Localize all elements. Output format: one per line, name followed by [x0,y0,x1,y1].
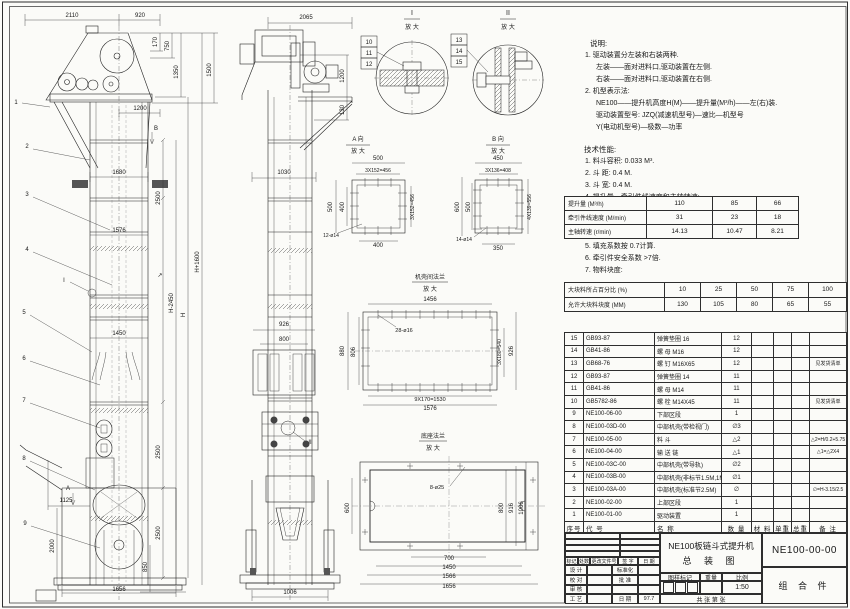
base-flange-view [352,441,546,584]
dim-label: H-2450 [169,293,175,313]
cell: ∅2 [722,458,752,471]
cell [810,345,847,358]
cell [774,333,792,346]
cell: △1=△2X4 [810,446,847,459]
dim-label: 1450 [112,331,126,337]
cell [792,484,810,497]
cell [810,421,847,434]
dim-label: 926 [279,322,290,328]
dim-label: 800 [499,502,505,513]
dim-label: 1350 [174,65,180,79]
dim-label: A 向 [352,135,363,143]
callout-2: 2 [25,144,29,150]
cell [792,458,810,471]
dim-label: 750 [165,40,171,51]
callout-8: 8 [22,456,26,462]
mark-box-1 [663,582,674,593]
dim-label: 130 [340,104,346,115]
dim-label: 放 大 [405,23,419,31]
sign-space [587,575,612,585]
section-mark-ii: II [308,440,312,446]
dim-label: 1500 [207,63,213,77]
cell: 105 [701,297,737,312]
cell [792,358,810,371]
cell: 3 [565,484,584,497]
callout-11: 11 [366,51,373,57]
rev-header: 标记 [565,557,578,565]
cell: NE100-01-00 [584,509,655,522]
cell [774,370,792,383]
cell: 允许大块料块度 (MM) [565,297,665,312]
note-line: 7. 物料块度: [576,265,844,277]
cell [792,496,810,509]
parts-row: 8NE100-03D-00中部机壳(带检视门)∅3 [565,421,847,434]
dim-label: 放 大 [426,444,440,452]
rev-header: 更改文件号 [590,557,618,565]
dim-label: 800 [279,337,290,343]
cell: 牵引件线速度 (M/min) [565,211,647,225]
drawing-title: NE100板链斗式提升机 总 装 图 [660,533,762,573]
sheet-count-row: 共 张 第 张 [660,594,762,604]
cell: 料 斗 [655,433,722,446]
performance-row: 提升量 (M³/h)1108566 [565,197,799,211]
cell: 10.47 [713,225,757,239]
parts-list-table: 15GB93-87弹簧垫圈 161214GB41-86螺 母 M161213GB… [564,332,847,535]
dim-label: 放 大 [351,147,365,155]
cell: 主轴转速 (r/min) [565,225,647,239]
cell [774,345,792,358]
detail-view-ii [451,19,544,115]
dim-label: II [506,10,510,17]
cell: ∅=H-3.15/2.5 [810,484,847,497]
dim-label: 1576 [423,406,437,412]
callout-10: 10 [366,40,373,46]
cell [752,509,774,522]
dim-label: 500 [373,156,384,162]
callout-5: 5 [22,310,26,316]
drawing-title-line1: NE100板链斗式提升机 [668,540,754,552]
cell [792,408,810,421]
cell: ∅ [722,484,752,497]
note-line: 1. 料斗容积: 0.033 M³. [576,156,844,168]
cell: 8 [565,421,584,434]
cell [774,496,792,509]
dim-label: 700 [444,556,455,562]
cell [792,370,810,383]
cell: 弹簧垫圈 14 [655,370,722,383]
cell: 中部机壳(标准节2.5M) [655,484,722,497]
dim-label: 1200 [133,106,147,112]
cell: ∅1 [722,471,752,484]
cell: 110 [647,197,713,211]
cell: 100 [809,283,847,298]
dim-label: B 向 [492,135,504,143]
cell [752,345,774,358]
engineering-drawing-sheet: { "notes": { "heading": "说明:", "lines": … [0,0,850,609]
dim-label: 3X180=540 [497,339,503,365]
dim-label: 500 [466,201,472,212]
cell [752,458,774,471]
cell [752,421,774,434]
cell [792,421,810,434]
cell: 9 [565,408,584,421]
signature-grid: 标记处数更改文件号签 字日 期设 计标准化校 对批 准审 核工 艺日 期97.7 [565,533,660,604]
dim-label: 1456 [423,297,437,303]
mark-box-2 [675,582,686,593]
dim-label: 2110 [66,13,80,19]
cell: 见发货清单 [810,358,847,371]
dim-label: H+1600 [195,251,201,273]
sign-label2 [612,585,638,595]
cell: 螺 钉 M16X65 [655,358,722,371]
parts-row: 6NE100-04-00输 送 链△1△1=△2X4 [565,446,847,459]
cell [792,471,810,484]
dim-label: 400 [373,243,384,249]
note-line: Y(电动机型号)—极数—功率 [576,122,844,134]
cell: △2=H/0.2+5.75 [810,433,847,446]
cell [810,383,847,396]
parts-row: 11GB41-86螺 母 M1411 [565,383,847,396]
scale-value: 1:50 [722,581,762,594]
note-line: 驱动装置型号: JZQ(减速机型号)—速比—机型号 [576,110,844,122]
cell: GB68-76 [584,358,655,371]
parts-row: 1NE100-01-00驱动装置1 [565,509,847,522]
cell: 31 [647,211,713,225]
cell [810,370,847,383]
stamp-mark-boxes [660,581,700,594]
callout-14: 14 [456,49,463,55]
cell: 7 [565,433,584,446]
sign-label: 设 计 [565,565,587,575]
cell [792,433,810,446]
lump-size-table: 大块料所占百分比 (%)10255075100允许大块料块度 (MM)13010… [564,282,847,312]
cell [752,358,774,371]
detail-view-i [361,19,450,116]
cell: 螺 母 M14 [655,383,722,396]
cell [774,433,792,446]
dim-label: ↗ [157,273,162,279]
cell: 上部区段 [655,496,722,509]
dim-label: 2065 [299,15,313,21]
cell [792,383,810,396]
cell [792,509,810,522]
dim-label: 850 [143,561,149,572]
parts-row: 2NE100-02-00上部区段1 [565,496,847,509]
cell [752,484,774,497]
dim-label: 400 [340,201,346,212]
performance-table: 提升量 (M³/h)1108566牵引件线速度 (M/min)312318主轴转… [564,196,799,239]
cell: 11 [722,395,752,408]
cell [774,484,792,497]
performance-row: 牵引件线速度 (M/min)312318 [565,211,799,225]
cell [774,509,792,522]
dim-label: 806 [351,346,357,357]
cell: 提升量 (M³/h) [565,197,647,211]
cell: 弹簧垫圈 16 [655,333,722,346]
note-line: 3. 斗 宽: 0.4 M. [576,180,844,192]
cell: 18 [757,211,799,225]
sign-value: 97.7 [638,594,660,604]
dim-label: 1125 [60,498,74,504]
callout-3: 3 [25,192,29,198]
cell [752,370,774,383]
dim-label: 600 [455,201,461,212]
cell: 130 [665,297,701,312]
cell [774,358,792,371]
dim-label: 170 [153,36,159,47]
stamp-header-scale: 比例 [722,573,762,581]
parts-row: 13GB68-76螺 钉 M16X6512见发货清单 [565,358,847,371]
cell: 11 [722,383,752,396]
dim-label: 1656 [112,587,126,593]
cell: 输 送 链 [655,446,722,459]
stamp-header-weight: 重量 [700,573,722,581]
cell: 13 [565,358,584,371]
section-mark-i: I [63,278,65,284]
cell [792,333,810,346]
cell: 66 [757,197,799,211]
lump-size-row: 允许大块料块度 (MM)130105806555 [565,297,847,312]
cell: 1 [722,496,752,509]
dim-label: 450 [493,156,504,162]
cell: NE100-02-00 [584,496,655,509]
side-elevation-view [240,25,352,600]
callout-9: 9 [23,521,27,527]
sign-label2: 批 准 [612,575,638,585]
cell: 1 [565,509,584,522]
cell [810,458,847,471]
cell: 6 [565,446,584,459]
lump-size-row: 大块料所占百分比 (%)10255075100 [565,283,847,298]
note-line: 1. 驱动装置分左装和右装两种. [576,50,844,62]
dim-label: H [181,313,187,317]
sign-value [638,585,660,595]
note-line: 左装——面对进料口,驱动装置在左侧. [576,62,844,74]
cell: 见发货清单 [810,395,847,408]
dim-label: 1656 [442,584,456,590]
note-line: 5. 填充系数按 0.7计算. [576,241,844,253]
dim-label: 4X139=556 [527,194,533,220]
cell: NE100-03B-00 [584,471,655,484]
cell: 1 [722,408,752,421]
callout-4: 4 [25,247,29,253]
cell: 75 [773,283,809,298]
notes2-block: 5. 填充系数按 0.7计算.6. 牵引件安全系数 >7倍.7. 物料块度: [576,241,844,277]
part-kind: 组 合 件 [762,567,847,604]
dim-label: 880 [340,345,346,356]
drawing-labels: 2110920120017075013501500168025001576↗H+… [14,10,533,596]
dim-label: 1006 [283,590,297,596]
parts-row: 4NE100-03B-00中部机壳(非标节1.5M,1M)∅1 [565,471,847,484]
dim-label: I [411,10,413,17]
sign-label: 工 艺 [565,594,587,604]
dim-label: 1566 [442,574,456,580]
dim-label: 916 [509,502,515,513]
cell [774,383,792,396]
cell: 25 [701,283,737,298]
dim-label: 600 [345,502,351,513]
cell [752,395,774,408]
dim-label: 28-ø16 [395,328,412,334]
drawing-number: NE100-00-00 [762,533,847,567]
cell [752,333,774,346]
cell: 驱动装置 [655,509,722,522]
cell: 14.13 [647,225,713,239]
cell: 10 [565,395,584,408]
sign-space [587,594,612,604]
cell: 螺 栓 M14X45 [655,395,722,408]
cell: 12 [722,358,752,371]
dim-label: 1200 [340,69,346,83]
cell: 12 [722,345,752,358]
cell: NE100-06-00 [584,408,655,421]
cell: 12 [722,333,752,346]
cell: GB93-87 [584,333,655,346]
cell [774,421,792,434]
notes-heading: 说明: [576,38,844,50]
dim-label: 920 [135,13,146,19]
cell: 23 [713,211,757,225]
dim-label: 500 [328,201,334,212]
cell: 55 [809,297,847,312]
parts-row: 14GB41-86螺 母 M1612 [565,345,847,358]
cell [792,395,810,408]
cell [774,408,792,421]
parts-row: 15GB93-87弹簧垫圈 1612 [565,333,847,346]
drawing-title-line2: 总 装 图 [682,554,739,567]
cell: 5 [565,458,584,471]
tech-spec-block: 技术性能: 1. 料斗容积: 0.033 M³.2. 斗 距: 0.4 M.3.… [576,144,844,204]
weight-value [700,581,722,594]
note-line: 右装——面对进料口,驱动装置在右侧. [576,74,844,86]
cell: 螺 母 M16 [655,345,722,358]
cell: 8.21 [757,225,799,239]
cell: 15 [565,333,584,346]
cell: 4 [565,471,584,484]
callout-6: 6 [22,356,26,362]
cell: NE100-03C-00 [584,458,655,471]
cell [810,333,847,346]
cell: GB41-86 [584,383,655,396]
mark-box-3 [687,582,698,593]
cell: 10 [665,283,701,298]
parts-row: 10GB5782-86螺 栓 M14X4511见发货清单 [565,395,847,408]
callout-1: 1 [14,100,18,106]
dim-label: 3X152=456 [410,194,416,220]
dim-label: 3X136=408 [485,168,511,174]
note-line: 6. 牵引件安全系数 >7倍. [576,253,844,265]
cell [774,471,792,484]
dim-label: 放 大 [501,23,515,31]
parts-row: 12GB93-87弹簧垫圈 1411 [565,370,847,383]
cell: 中部机壳(带导轨) [655,458,722,471]
dim-label: 926 [509,345,515,356]
dim-label: 底座法兰 [421,432,445,440]
view-mark-b: B [154,126,158,132]
callout-13: 13 [456,38,463,44]
parts-row: 9NE100-06-00下部区段1 [565,408,847,421]
cell: 12 [565,370,584,383]
cell: 50 [737,283,773,298]
note-line: 2. 机型表示法: [576,86,844,98]
dim-label: 2500 [156,526,162,540]
sign-space [587,585,612,595]
cell [752,408,774,421]
cell [792,446,810,459]
cell: △2 [722,433,752,446]
dim-label: 14-ø14 [456,237,472,243]
cell: NE100-03D-00 [584,421,655,434]
dim-label: 12-ø14 [323,233,339,239]
dim-label: 350 [493,246,504,252]
cell [792,345,810,358]
cell: 14 [565,345,584,358]
sign-label2: 日 期 [612,594,638,604]
dim-label: 3X152=456 [365,168,391,174]
cell [774,395,792,408]
dim-label: 1576 [112,228,126,234]
dim-label: 1006 [519,501,525,515]
parts-row: 7NE100-05-00料 斗△2△2=H/0.2+5.75 [565,433,847,446]
cell: 2 [565,496,584,509]
dim-label: 机壳间法兰 [415,273,445,281]
tech-heading: 技术性能: [576,144,844,156]
cell [810,509,847,522]
cell: GB41-86 [584,345,655,358]
title-block: 标记处数更改文件号签 字日 期设 计标准化校 对批 准审 核工 艺日 期97.7… [564,532,846,603]
cell: NE100-04-00 [584,446,655,459]
left-elevation-view [20,26,186,601]
cell: GB5782-86 [584,395,655,408]
cell [810,408,847,421]
rev-header: 处数 [578,557,590,565]
cell [752,433,774,446]
support-bracket-left [72,180,88,188]
sign-label: 校 对 [565,575,587,585]
dim-label: 1680 [112,170,126,176]
cell: NE100-03A-00 [584,484,655,497]
sign-value [638,565,660,575]
cell [752,446,774,459]
rev-header: 日 期 [638,557,660,565]
note-line: 2. 斗 距: 0.4 M. [576,168,844,180]
note-line: NE100——提升机高度H(M)——提升量(M³/h)——左(右)装. [576,98,844,110]
sign-label2: 标准化 [612,565,638,575]
cell [752,383,774,396]
parts-row: 5NE100-03C-00中部机壳(带导轨)∅2 [565,458,847,471]
cell: 65 [773,297,809,312]
dim-label: 放 大 [423,285,437,293]
dim-label: 2500 [156,445,162,459]
dim-label: 放 大 [491,147,505,155]
notes-block: 说明: 1. 驱动装置分左装和右装两种.左装——面对进料口,驱动装置在左侧.右装… [576,38,844,134]
cell: 下部区段 [655,408,722,421]
dim-label: 9X170=1530 [414,397,445,403]
stamp-header-mark: 图样标记 [660,573,700,581]
callout-12: 12 [366,62,373,68]
cell: ∅3 [722,421,752,434]
cell: 1 [722,509,752,522]
performance-row: 主轴转速 (r/min)14.1310.478.21 [565,225,799,239]
callout-15: 15 [456,60,463,66]
cell: 80 [737,297,773,312]
cell: 中部机壳(带检视门) [655,421,722,434]
cell: GB93-87 [584,370,655,383]
cell: 中部机壳(非标节1.5M,1M) [655,471,722,484]
cell [810,496,847,509]
parts-row: 3NE100-03A-00中部机壳(标准节2.5M)∅∅=H-3.15/2.5 [565,484,847,497]
cell: △1 [722,446,752,459]
